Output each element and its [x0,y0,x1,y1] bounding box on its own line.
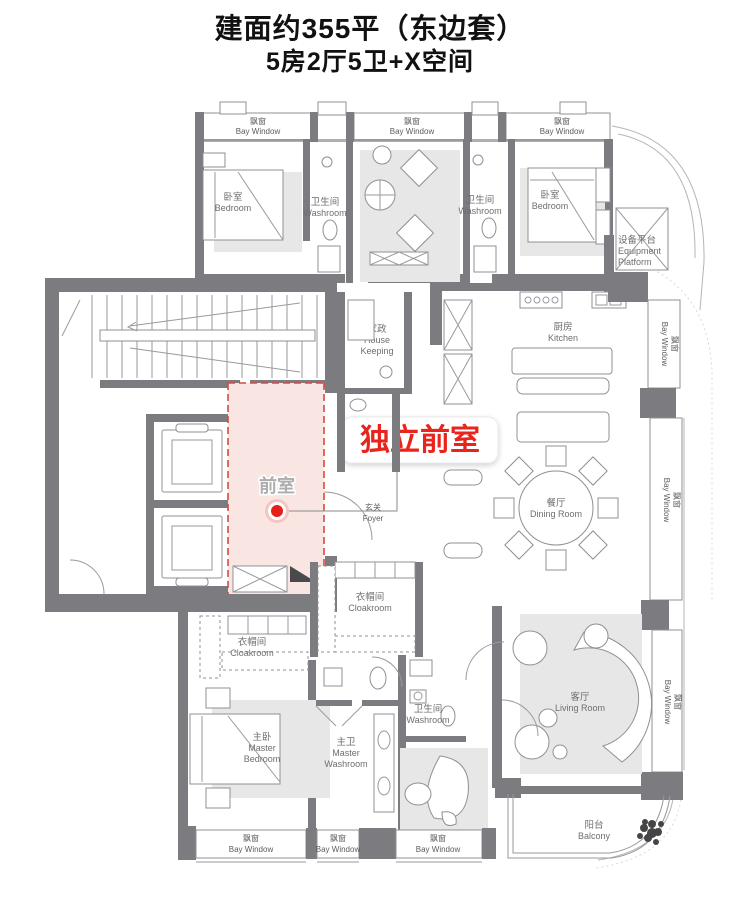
staircase-icon [92,295,317,378]
bay-window-label-en: Bay Window [416,845,461,854]
upper-wing: 卧室 Bedroom 卫生间 Washroom [195,102,668,305]
bay-window-label-zh: 飘窗 [404,116,420,126]
room-label-foyer-zh: 玄关 [365,502,381,512]
dining-table-icon: 餐厅 Dining Room [494,446,618,570]
wardrobe-hatch-icon [335,636,415,652]
nightstand-icon [206,688,230,708]
room-label-bedroom2-en: Bedroom [532,201,569,211]
door-arc [70,560,104,594]
bay-window-label-en: Bay Window [660,322,669,367]
sink-icon [322,157,332,167]
coffee-table-icon [553,745,567,759]
callout-box: 独立前室 [342,417,498,463]
room-label-bedroom1-zh: 卧室 [223,191,242,203]
room-label-washroom1-en: Washroom [303,208,346,218]
wardrobe-hatch-icon [318,566,335,652]
bay-window-label-zh: 飘窗 [330,833,346,843]
kitchen-island-icon [517,412,609,442]
shelf-icon [228,616,306,634]
wardrobe-hatch-icon [200,616,220,678]
room-label-equipment-en2: Platform [618,257,652,267]
cabinet-icon [348,300,374,340]
bottom-bay-windows: 飘窗 Bay Window 飘窗 Bay Window 飘窗 Bay Windo… [178,826,496,862]
room-label-bedroom1-en: Bedroom [215,203,252,213]
shower-icon [474,246,496,272]
room-label-foyer-en: Foyer [363,514,384,523]
callout-label: 独立前室 [360,423,480,457]
room-label-balcony-en: Balcony [578,831,611,841]
bay-window-label-zh: 飘窗 [243,833,259,843]
room-label-bedroom2-zh: 卧室 [540,189,559,201]
room-label-washroom2-en: Washroom [458,206,501,216]
room-label-master-bedroom-en2: Bedroom [244,754,281,764]
room-label-washroom2-zh: 卫生间 [466,194,495,206]
room-label-equipment-en1: Equipment [618,246,662,256]
sink-icon [380,366,392,378]
console-table-icon [444,470,482,485]
location-dot-icon [265,499,289,523]
armchair-icon [515,725,549,759]
sitting-room-top [360,146,460,282]
balcony: 阳台 Balcony [508,794,670,858]
bay-window-label-en: Bay Window [663,680,672,725]
bay-window-label-zh: 飘窗 [250,116,266,126]
bay-window-label-zh: 飘窗 [554,116,570,126]
x-space-study [400,748,488,834]
toilet-icon [323,220,337,240]
elevator-car-icon [162,516,222,578]
cloakroom-2: 衣帽间 Cloakroom [200,616,308,678]
shower-icon [318,246,340,272]
bay-window-label-en: Bay Window [229,845,274,854]
vanity-icon [374,714,394,812]
room-label-equipment-zh: 设备平台 [618,234,656,246]
room-label-washroom-bottom-en: Washroom [406,715,449,725]
kitchen-counter-icon [517,378,609,394]
room-label-master-bedroom-en1: Master [248,743,276,753]
bench-icon [370,252,428,265]
room-label-master-bedroom-zh: 主卧 [252,731,272,743]
stove-icon [520,292,562,308]
bay-window-label-zh: 飘窗 [430,833,446,843]
bay-window-label-zh: 飘窗 [672,492,682,508]
room-label-balcony-zh: 阳台 [584,819,603,831]
bedroom-top-left: 卧室 Bedroom [203,153,302,252]
room-label-master-washroom-en1: Master [332,748,360,758]
room-label-kitchen-zh: 厨房 [553,321,572,333]
foyer-dining: 玄关 Foyer 餐厅 Dining Room [363,446,618,570]
room-label-living-zh: 客厅 [570,691,590,703]
cabinet-icon [410,660,432,676]
room-label-living-en: Living Room [555,703,605,713]
room-label-cloakroom1-zh: 衣帽间 [356,591,385,603]
chair-icon [405,783,431,805]
toilet-icon [482,218,496,238]
armchair-icon [513,631,547,665]
door-arc [342,706,362,726]
room-label-master-washroom-zh: 主卫 [336,736,356,748]
stool-icon [373,146,391,164]
bay-window-label-en: Bay Window [540,127,585,136]
room-label-dining-zh: 餐厅 [546,497,566,509]
room-label-kitchen-en: Kitchen [548,333,578,343]
bay-window-label-en: Bay Window [316,845,361,854]
room-label-cloakroom1-en: Cloakroom [348,603,392,613]
room-label-washroom1-zh: 卫生间 [311,196,340,208]
side-table-icon [584,624,608,648]
bay-window-label-en: Bay Window [662,478,671,523]
console-table-icon [444,543,482,558]
room-label-cloakroom2-en: Cloakroom [230,648,274,658]
bay-window-label-zh: 飘窗 [670,336,680,352]
room-label-housekeeping-en2: Keeping [360,346,393,356]
room-label-dining-en: Dining Room [530,509,582,519]
elevator-shaft [146,414,238,596]
toilet-icon [370,667,386,689]
sink-icon [473,155,483,165]
elevator-car-icon [162,430,222,492]
shower-icon [324,668,342,686]
room-label-master-washroom-en2: Washroom [324,759,367,769]
room-label-washroom-bottom-zh: 卫生间 [414,703,443,715]
bedroom-top-right: 卧室 Bedroom [520,168,610,256]
floorplan-page: 建面约355平（东边套） 5房2厅5卫+X空间 [0,0,740,899]
bay-window-label-en: Bay Window [390,127,435,136]
kitchen-counter-icon [512,348,612,374]
door-arc [62,300,80,336]
nightstand-icon [206,788,230,808]
floorplan-drawing: 卧室 Bedroom 卫生间 Washroom [0,0,740,899]
bay-window-label-zh: 飘窗 [673,694,683,710]
bay-window-label-en: Bay Window [236,127,281,136]
living-room: 客厅 Living Room [513,614,652,774]
front-room-tag: 前室 [259,475,295,496]
master-bedroom: 主卧 Master Bedroom [190,688,330,808]
room-label-cloakroom2-zh: 衣帽间 [238,636,267,648]
